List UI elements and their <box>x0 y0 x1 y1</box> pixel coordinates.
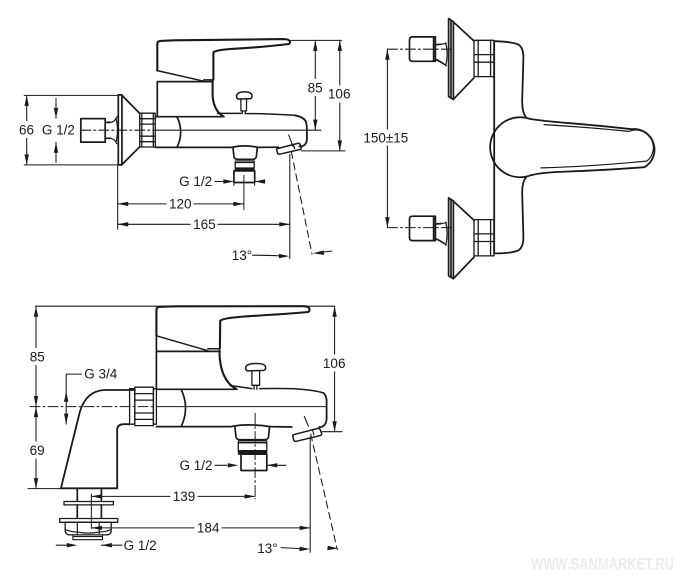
svg-text:66: 66 <box>19 122 34 137</box>
svg-text:13°: 13° <box>257 541 277 556</box>
svg-text:G 1/2: G 1/2 <box>124 538 157 553</box>
svg-text:120: 120 <box>169 197 192 212</box>
svg-text:150±15: 150±15 <box>363 131 408 146</box>
svg-text:106: 106 <box>328 86 351 101</box>
svg-text:G 1/2: G 1/2 <box>179 458 212 473</box>
svg-text:139: 139 <box>173 489 196 504</box>
svg-text:G 1/2: G 1/2 <box>179 174 212 189</box>
svg-text:13°: 13° <box>232 248 252 263</box>
svg-text:184: 184 <box>197 521 220 536</box>
svg-text:G 1/2: G 1/2 <box>42 122 75 137</box>
svg-text:69: 69 <box>30 443 45 458</box>
svg-text:85: 85 <box>308 80 323 95</box>
svg-text:WWW.SANMARKET.RU: WWW.SANMARKET.RU <box>531 555 674 574</box>
svg-text:106: 106 <box>323 356 346 371</box>
svg-text:G 3/4: G 3/4 <box>84 366 118 381</box>
svg-text:85: 85 <box>30 349 45 364</box>
svg-text:165: 165 <box>193 217 216 232</box>
